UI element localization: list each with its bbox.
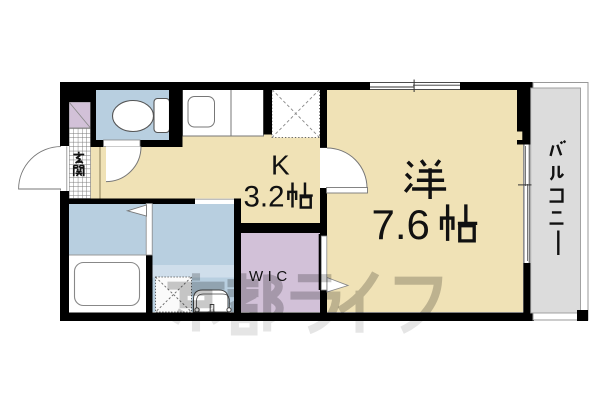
svg-text:7.6: 7.6 bbox=[372, 201, 430, 248]
svg-text:K: K bbox=[271, 150, 290, 181]
svg-text:3.2: 3.2 bbox=[244, 181, 285, 214]
